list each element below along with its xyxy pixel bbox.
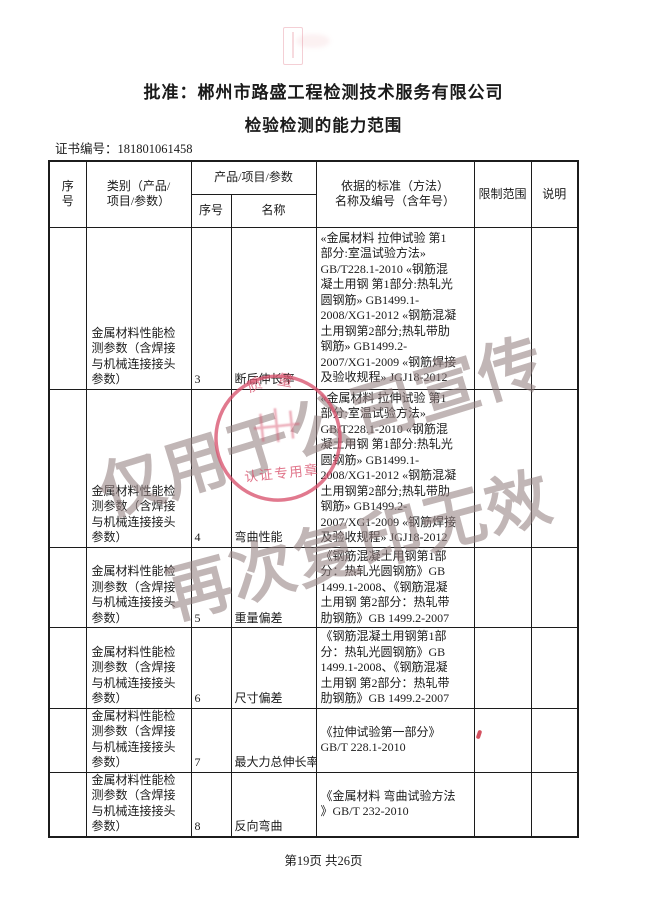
cell-category: 金属材料性能检 测参数（含焊接 与机械连接接头 参数）: [86, 628, 191, 709]
cell-no: 3: [191, 227, 231, 389]
table-row: 金属材料性能检 测参数（含焊接 与机械连接接头 参数） 7 最大力总伸长率 《拉…: [49, 708, 578, 772]
cell-no: 4: [191, 389, 231, 547]
cell-seq: [49, 547, 86, 628]
cell-no: 6: [191, 628, 231, 709]
header-category: 类别（产品/ 项目/参数）: [86, 161, 191, 227]
cell-note: [531, 628, 578, 709]
header-sub-name: 名称: [231, 194, 316, 227]
cell-limit: [474, 628, 531, 709]
cell-seq: [49, 227, 86, 389]
cell-category: 金属材料性能检 测参数（含焊接 与机械连接接头 参数）: [86, 227, 191, 389]
capability-scope-title: 检验检测的能力范围: [0, 112, 647, 136]
cell-seq: [49, 772, 86, 837]
header-product-group: 产品/项目/参数: [191, 161, 316, 194]
small-red-stamp-icon: [283, 27, 303, 65]
cell-no: 8: [191, 772, 231, 837]
cell-category: 金属材料性能检 测参数（含焊接 与机械连接接头 参数）: [86, 772, 191, 837]
cell-limit: [474, 708, 531, 772]
cell-standard: 《金属材料 弯曲试验方法 》GB/T 232-2010: [316, 772, 474, 837]
table-row: 金属材料性能检 测参数（含焊接 与机械连接接头 参数） 8 反向弯曲 《金属材料…: [49, 772, 578, 837]
table-row: 金属材料性能检 测参数（含焊接 与机械连接接头 参数） 4 弯曲性能 «金属材料…: [49, 389, 578, 547]
cell-standard: 《拉伸试验第一部分》 GB/T 228.1-2010: [316, 708, 474, 772]
cell-name: 弯曲性能: [231, 389, 316, 547]
cell-limit: [474, 547, 531, 628]
cell-limit: [474, 227, 531, 389]
cell-standard: «金属材料 拉伸试验 第1 部分:室温试验方法» GB/T228.1-2010 …: [316, 389, 474, 547]
cell-note: [531, 389, 578, 547]
cell-limit: [474, 389, 531, 547]
cell-no: 5: [191, 547, 231, 628]
cell-standard: «金属材料 拉伸试验 第1 部分:室温试验方法» GB/T228.1-2010 …: [316, 227, 474, 389]
cell-category: 金属材料性能检 测参数（含焊接 与机械连接接头 参数）: [86, 547, 191, 628]
table-row: 金属材料性能检 测参数（含焊接 与机械连接接头 参数） 5 重量偏差 《钢筋混凝…: [49, 547, 578, 628]
cell-category: 金属材料性能检 测参数（含焊接 与机械连接接头 参数）: [86, 389, 191, 547]
header-limit: 限制范围: [474, 161, 531, 227]
cell-seq: [49, 628, 86, 709]
header-note: 说明: [531, 161, 578, 227]
cell-seq: [49, 389, 86, 547]
capability-table: 序 号 类别（产品/ 项目/参数） 产品/项目/参数 依据的标准（方法） 名称及…: [48, 160, 579, 838]
header-seq: 序 号: [49, 161, 86, 227]
cell-note: [531, 708, 578, 772]
cell-standard: 《钢筋混凝土用钢第1部 分：热轧光圆钢筋》GB 1499.1-2008、《钢筋混…: [316, 628, 474, 709]
cell-name: 断后伸长率: [231, 227, 316, 389]
approval-title: 批准：郴州市路盛工程检测技术服务有限公司: [0, 78, 647, 103]
cell-category: 金属材料性能检 测参数（含焊接 与机械连接接头 参数）: [86, 708, 191, 772]
page-number: 第19页 共26页: [0, 850, 647, 869]
cell-name: 最大力总伸长率: [231, 708, 316, 772]
cell-standard: 《钢筋混凝土用钢第1部 分：热轧光圆钢筋》GB 1499.1-2008、《钢筋混…: [316, 547, 474, 628]
header-standard: 依据的标准（方法） 名称及编号（含年号）: [316, 161, 474, 227]
certificate-number: 证书编号：181801061458: [55, 138, 193, 157]
table-row: 金属材料性能检 测参数（含焊接 与机械连接接头 参数） 3 断后伸长率 «金属材…: [49, 227, 578, 389]
header-sub-seq: 序号: [191, 194, 231, 227]
faint-ink-smudge: [296, 34, 330, 48]
cell-seq: [49, 708, 86, 772]
table-row: 金属材料性能检 测参数（含焊接 与机械连接接头 参数） 6 尺寸偏差 《钢筋混凝…: [49, 628, 578, 709]
cell-name: 反向弯曲: [231, 772, 316, 837]
cell-name: 重量偏差: [231, 547, 316, 628]
cell-name: 尺寸偏差: [231, 628, 316, 709]
cell-limit: [474, 772, 531, 837]
document-page: 批准：郴州市路盛工程检测技术服务有限公司 检验检测的能力范围 证书编号：1818…: [0, 0, 647, 909]
cell-note: [531, 547, 578, 628]
cell-note: [531, 227, 578, 389]
cell-note: [531, 772, 578, 837]
cell-no: 7: [191, 708, 231, 772]
